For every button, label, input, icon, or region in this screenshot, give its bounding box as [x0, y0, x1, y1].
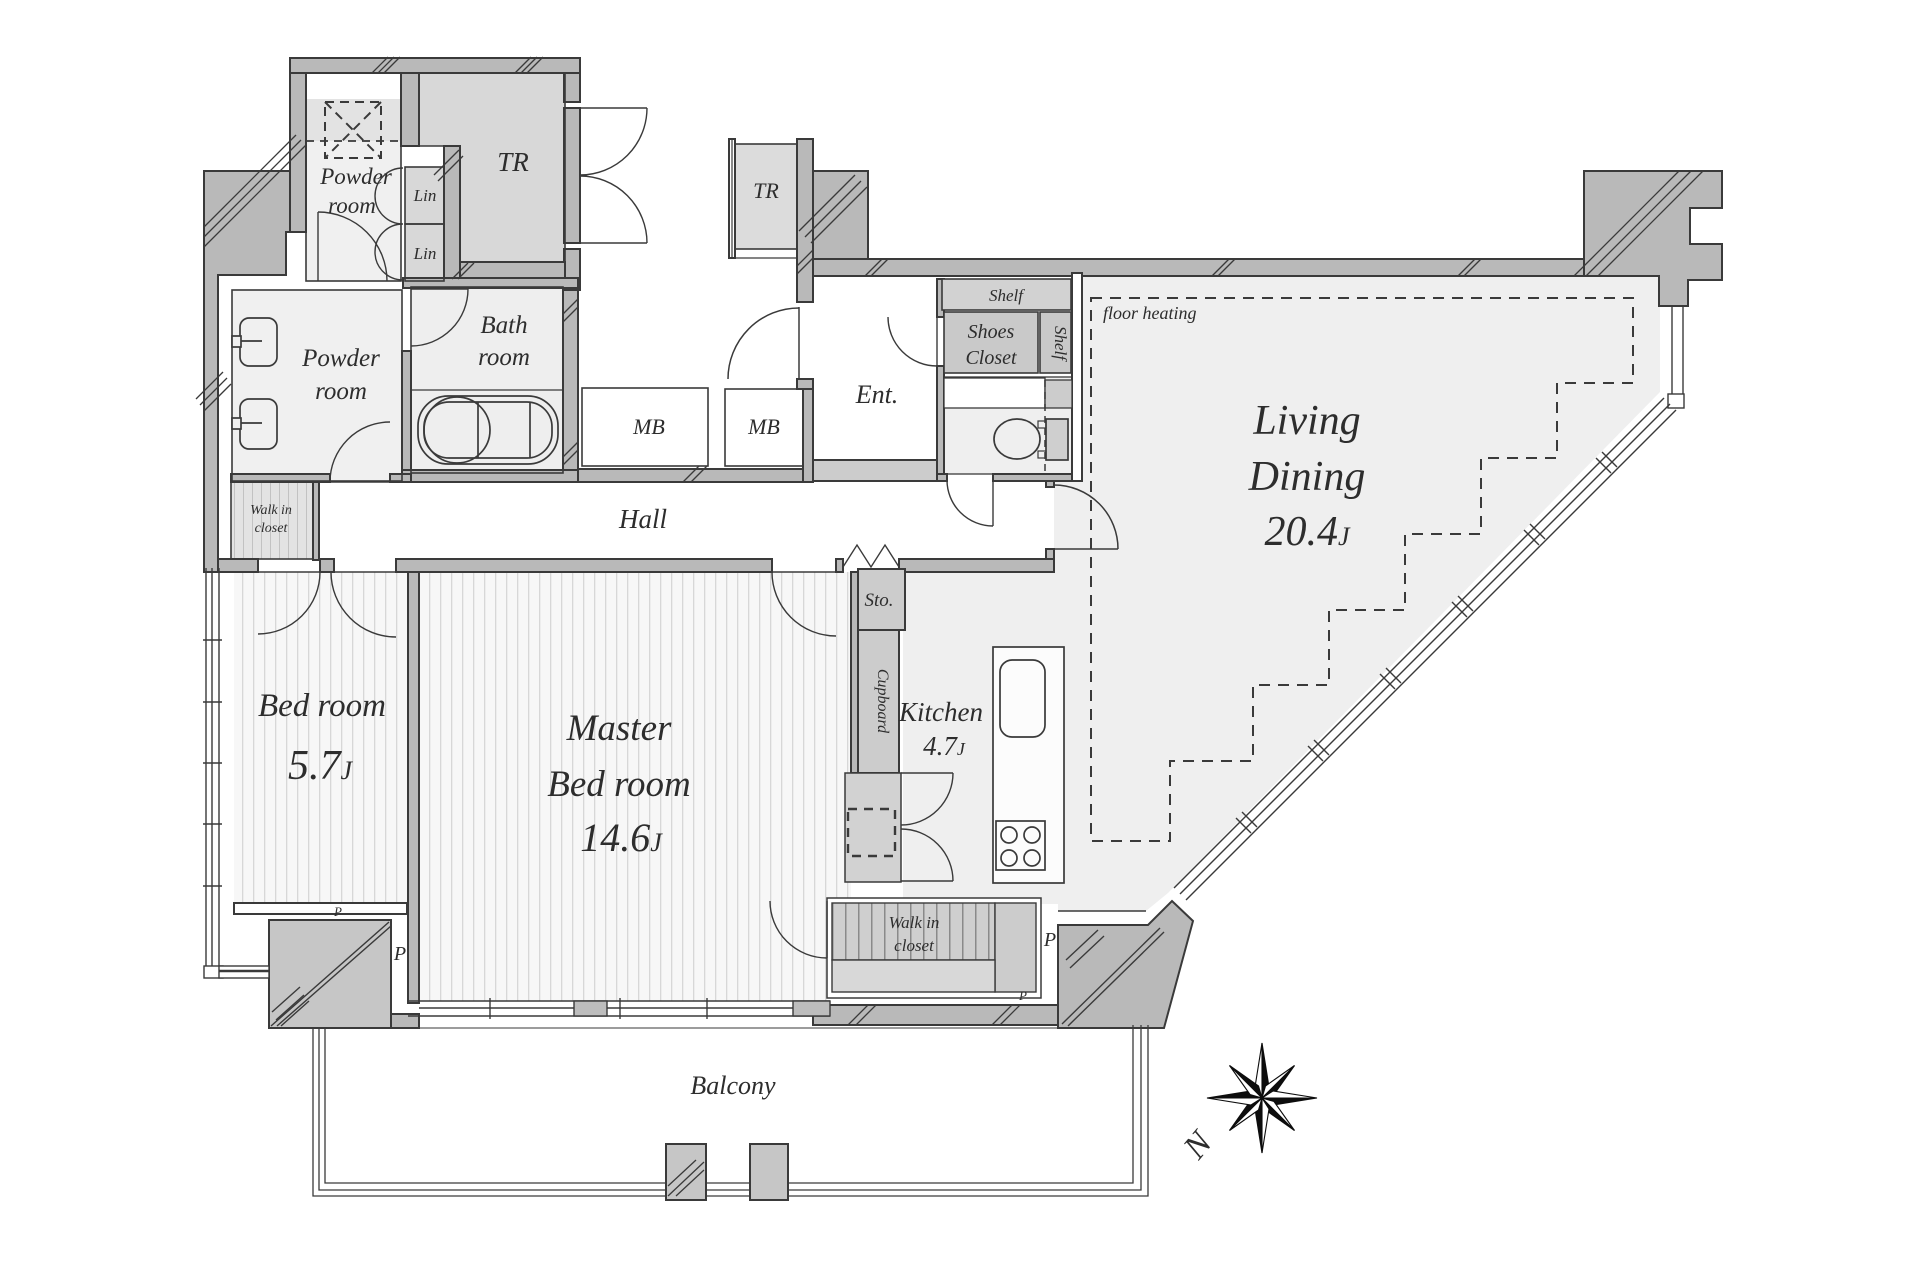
svg-text:MB: MB — [747, 414, 780, 439]
svg-text:Bed room: Bed room — [258, 688, 386, 724]
svg-text:Ent.: Ent. — [855, 380, 899, 409]
svg-text:Walk in: Walk in — [250, 503, 292, 518]
svg-text:Hall: Hall — [618, 504, 667, 534]
svg-text:Lin: Lin — [413, 186, 437, 205]
svg-text:Shelf: Shelf — [1051, 326, 1070, 362]
svg-text:Cupboard: Cupboard — [874, 669, 891, 734]
svg-text:Walk in: Walk in — [889, 913, 940, 932]
svg-text:Bath: Bath — [480, 312, 527, 339]
svg-text:P: P — [393, 943, 406, 965]
svg-text:Dining: Dining — [1248, 454, 1366, 500]
svg-text:Sto.: Sto. — [864, 590, 893, 611]
svg-text:Living: Living — [1252, 398, 1360, 444]
svg-text:TR: TR — [753, 178, 779, 203]
svg-text:Balcony: Balcony — [690, 1071, 776, 1100]
svg-text:TR: TR — [497, 147, 529, 177]
svg-text:closet: closet — [894, 936, 935, 955]
svg-text:Lin: Lin — [413, 244, 437, 263]
svg-text:MB: MB — [632, 414, 665, 439]
svg-text:Powder: Powder — [301, 345, 380, 372]
svg-text:room: room — [478, 344, 530, 371]
svg-text:Bed room: Bed room — [547, 764, 691, 805]
svg-text:P: P — [333, 904, 342, 919]
svg-text:floor heating: floor heating — [1103, 303, 1197, 323]
svg-text:Shoes: Shoes — [968, 321, 1015, 343]
svg-text:P: P — [1018, 988, 1027, 1003]
svg-text:Master: Master — [566, 708, 672, 749]
svg-text:room: room — [315, 378, 367, 405]
svg-text:Shelf: Shelf — [989, 286, 1025, 305]
svg-text:closet: closet — [255, 521, 289, 536]
svg-text:P: P — [1043, 929, 1056, 951]
svg-text:Kitchen: Kitchen — [898, 697, 983, 727]
svg-text:Powder: Powder — [319, 164, 393, 189]
svg-text:room: room — [328, 193, 376, 218]
svg-text:Closet: Closet — [965, 347, 1017, 369]
